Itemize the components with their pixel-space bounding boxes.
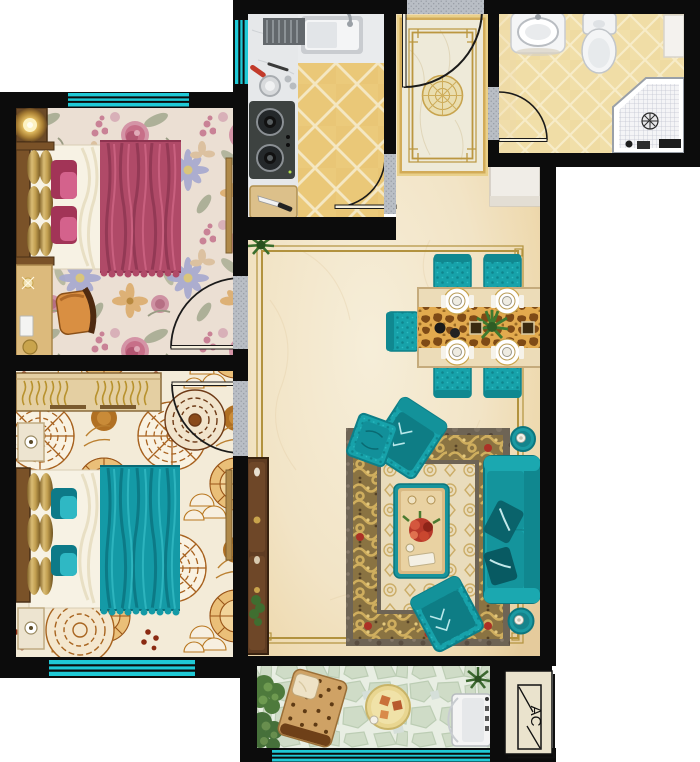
svg-text:AC: AC [527,706,544,727]
